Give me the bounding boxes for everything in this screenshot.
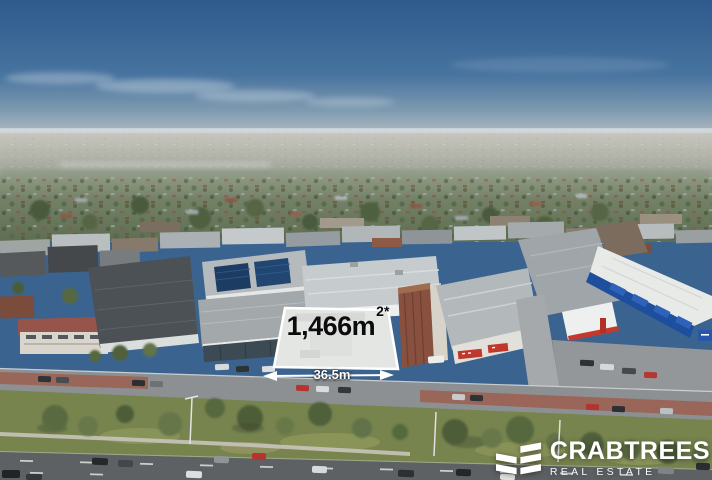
site-area-label: 1,466m2* xyxy=(268,312,408,342)
aerial-scene xyxy=(0,0,712,480)
left-street-block xyxy=(0,245,199,362)
right-industrial xyxy=(516,220,712,400)
solar-panel-array xyxy=(254,258,291,287)
arrowhead-right xyxy=(380,370,394,380)
site-area-value: 1,466m xyxy=(287,311,376,341)
dark-warehouse xyxy=(88,256,199,353)
crabtrees-logo-icon xyxy=(496,441,541,475)
agency-tagline: REAL ESTATE xyxy=(550,467,710,478)
site-frontage-label: 36.5m xyxy=(300,367,364,382)
agency-name-block: CRABTREES REAL ESTATE xyxy=(550,439,710,478)
agency-name: CRABTREES xyxy=(550,439,710,464)
atmospheric-haze xyxy=(0,128,712,200)
listing-photo: 1,466m2* 36.5m CRABTREES REAL ESTATE xyxy=(0,0,712,480)
agency-watermark: CRABTREES REAL ESTATE xyxy=(496,439,710,478)
solar-panel-array xyxy=(214,263,251,292)
site-area-superscript: 2* xyxy=(376,303,389,319)
